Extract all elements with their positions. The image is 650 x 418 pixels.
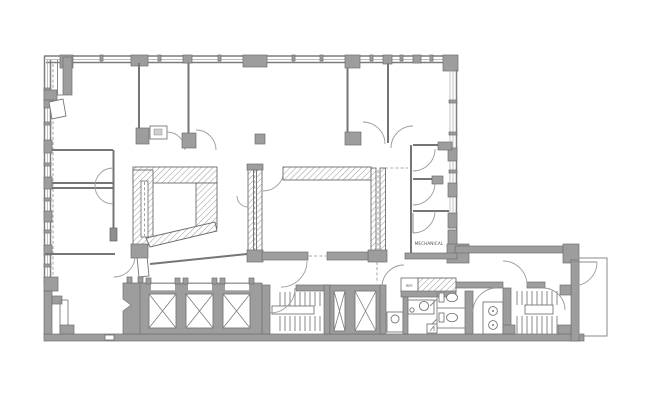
double-door-arc-left <box>363 122 385 144</box>
core-door-arc-1 <box>263 170 284 191</box>
free-column <box>255 134 265 144</box>
exterior-window-wall-top <box>44 55 458 71</box>
stair2-landing <box>525 305 553 314</box>
elevator-car-1 <box>149 294 176 328</box>
corridor-door-arc <box>503 261 527 285</box>
restrooms <box>401 291 473 334</box>
east-room-door-arc <box>413 149 435 171</box>
lobby-west-door-leaf <box>137 256 149 277</box>
sink-icon <box>419 301 428 310</box>
core-shaft-right <box>196 183 217 228</box>
office-door-arc <box>196 130 216 150</box>
stairwell-1 <box>262 285 330 334</box>
core-l-top <box>283 167 371 180</box>
floor-plan-drawing: MECHANICAL <box>0 0 650 418</box>
mechanical-room-label: MECHANICAL <box>415 241 444 246</box>
core-door-arc-2 <box>237 196 248 207</box>
shaft-wall-b <box>257 168 263 252</box>
shaft-wall-a <box>248 168 254 252</box>
core-door-arc-3 <box>281 261 307 287</box>
double-door-arc-right <box>391 126 413 148</box>
left-room-door-arc <box>95 168 113 204</box>
core-l-bar-a <box>371 168 376 252</box>
wall-vent <box>105 335 114 340</box>
elevator-car-3 <box>223 294 250 328</box>
fountain-icon <box>391 315 399 323</box>
window-columns-right <box>448 100 457 246</box>
pantry: REF. <box>401 278 456 292</box>
lobby-west-door-arc <box>114 256 135 277</box>
core-hatched-walls <box>131 164 408 287</box>
east-room2-door-arc <box>413 183 435 205</box>
toilet-icon-1 <box>439 293 458 302</box>
corner-door-leaf <box>49 99 66 119</box>
floor-plan-page: MECHANICAL <box>0 0 650 418</box>
toilet-icon-2 <box>439 313 458 322</box>
elevator-car-2 <box>186 294 213 328</box>
service-shafts <box>330 285 382 334</box>
stair1-landing <box>272 306 314 314</box>
exterior-wall-bottom <box>44 334 584 341</box>
elevator-bank <box>123 277 262 334</box>
pantry-counter <box>418 278 456 292</box>
lavatory-pair <box>483 302 503 334</box>
service-shaft-narrow <box>334 291 345 331</box>
core-shaft-diagonal <box>146 222 217 247</box>
service-elevator <box>355 291 376 331</box>
exterior-window-wall-right <box>448 70 457 246</box>
mechanical-door-arc <box>413 211 435 233</box>
southwest-corner <box>44 277 74 334</box>
core-l-bar-b <box>380 168 386 252</box>
refrigerator-label: REF. <box>406 284 413 288</box>
